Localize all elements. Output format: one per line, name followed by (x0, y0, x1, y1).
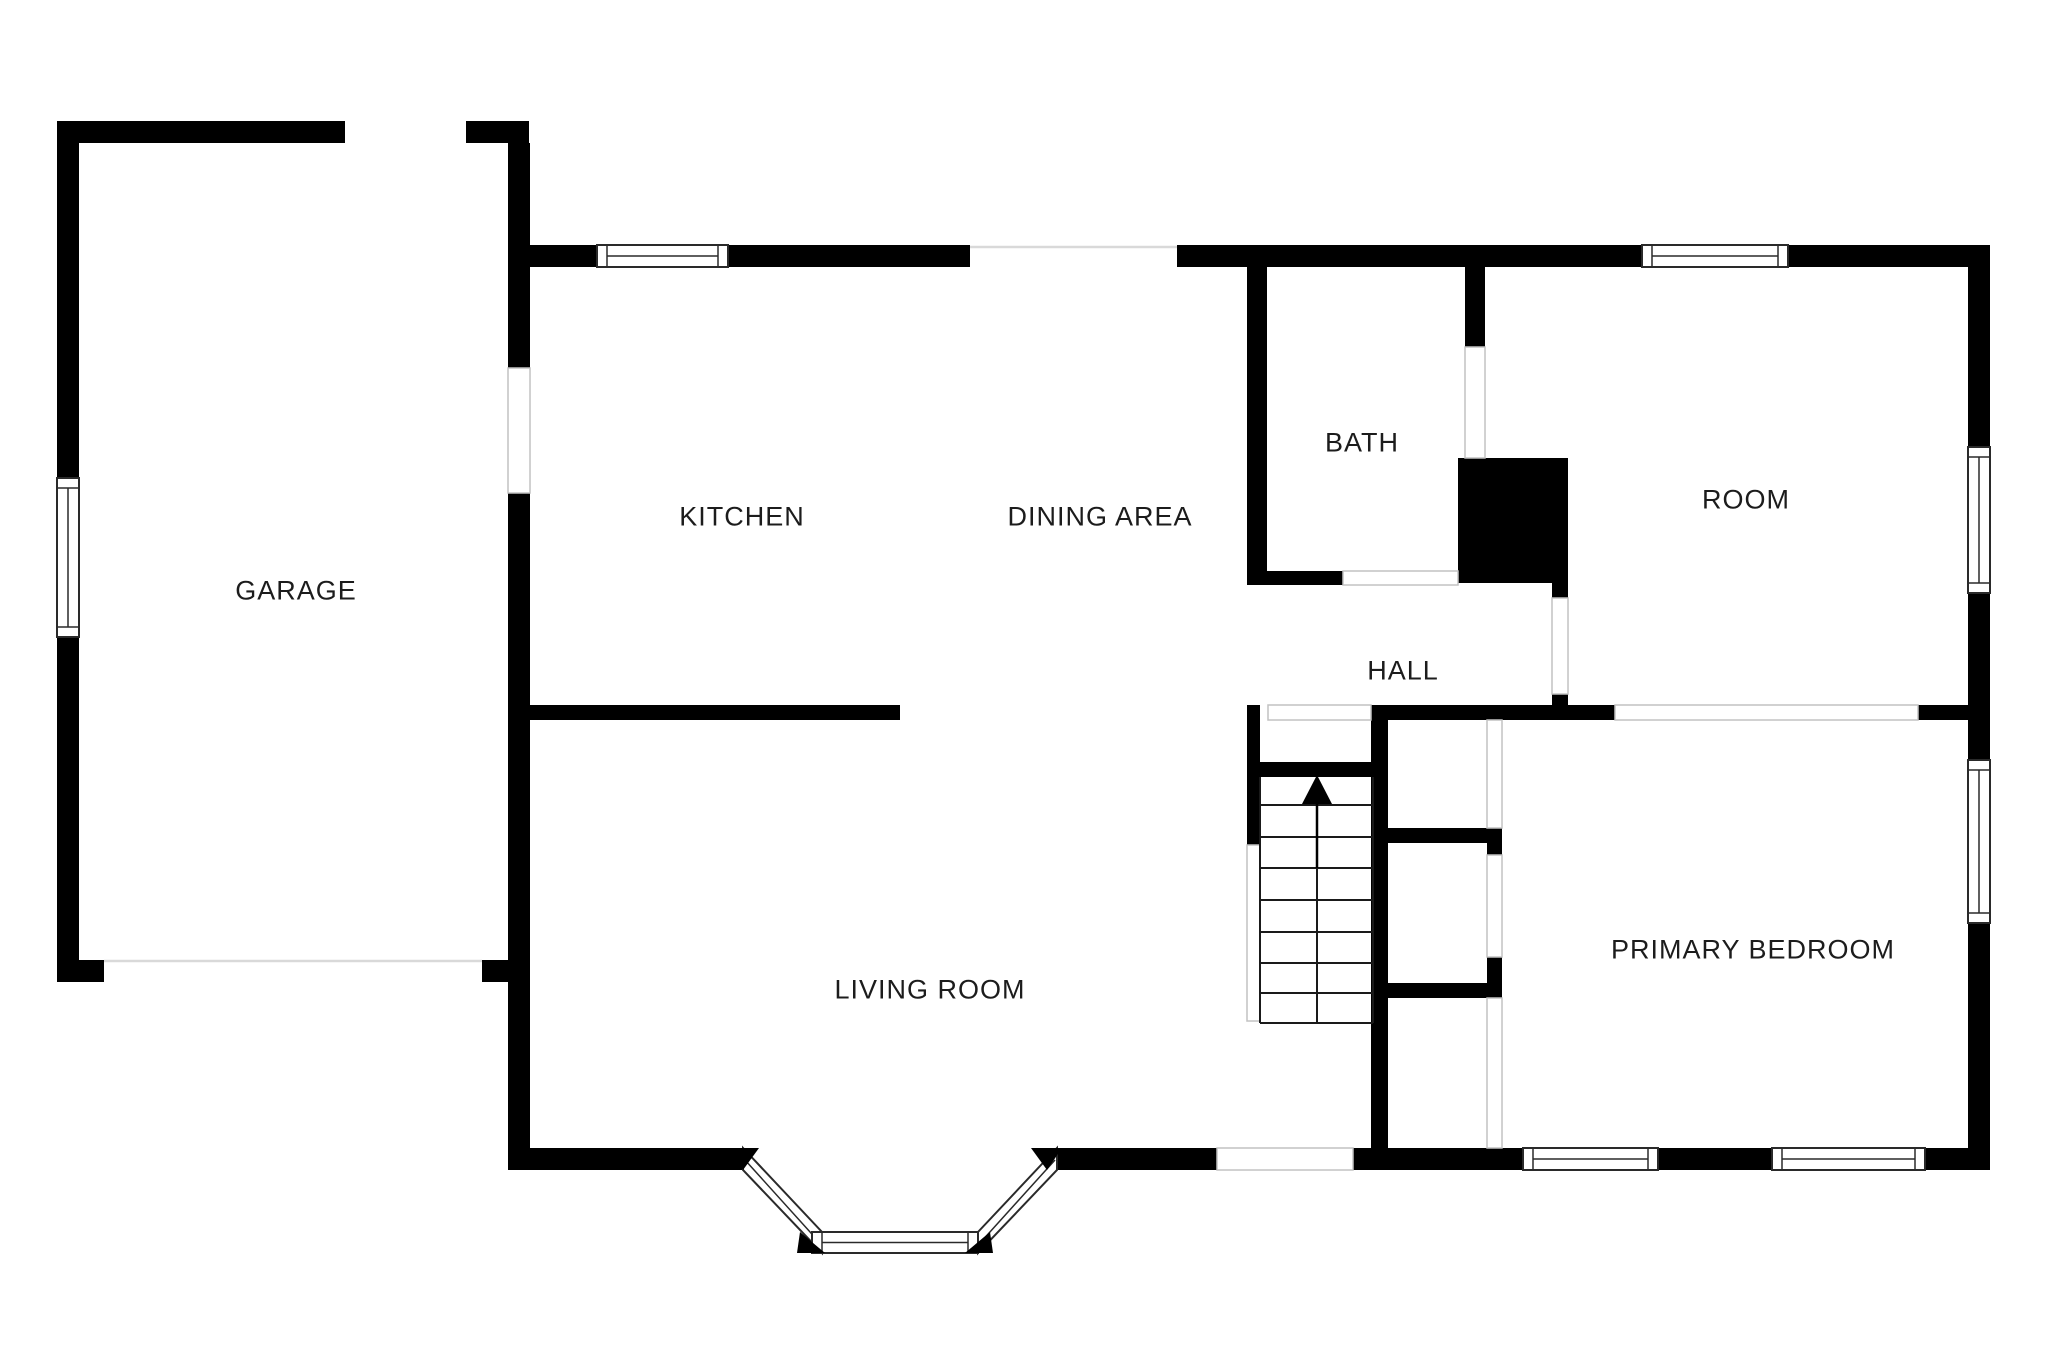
west-shared-wall-lower-wall (508, 493, 530, 1170)
room-label-bath: BATH (1325, 428, 1399, 459)
bath-bottom-door (1343, 571, 1458, 585)
floor-plan: GARAGE KITCHEN DINING AREA BATH ROOM HAL… (0, 0, 2048, 1365)
closet-post-lower-wall (1487, 957, 1502, 983)
bedroom-bottom-wall-1-wall (1353, 1148, 1523, 1170)
living-bottom-wall-west-wall (508, 1148, 743, 1170)
floor-plan-canvas (0, 0, 2048, 1365)
room-label-kitchen: KITCHEN (679, 502, 805, 533)
bath-room-top-wall-wall (1177, 245, 1990, 267)
stairs-left-wall-wall (1247, 705, 1260, 845)
stair-up-arrow-icon (1302, 775, 1332, 804)
room-label-room: ROOM (1702, 485, 1790, 516)
understair-strip (1247, 845, 1260, 1021)
bath-left-wall-wall (1247, 267, 1267, 585)
chimney-step-wall (1552, 583, 1568, 598)
garage-kitchen-door (508, 368, 530, 493)
garage-bottom-wall-left-wall (57, 960, 104, 982)
closet-post-upper-wall (1487, 843, 1502, 855)
closet-door-3 (1487, 998, 1502, 1148)
back-door (1217, 1148, 1353, 1170)
bay-right-window-pane-line (980, 1160, 1055, 1243)
bedroom-wide-opening (1615, 705, 1918, 720)
west-shared-wall-upper-wall (508, 143, 530, 368)
hall-door-stub-wall (1552, 694, 1568, 706)
kitchen-living-divider-wall (530, 705, 900, 720)
closet-wall-upper-wall (1388, 828, 1502, 843)
room-label-garage: GARAGE (235, 576, 357, 607)
room-label-hall: HALL (1367, 656, 1439, 687)
bay-left-window-pane-line (745, 1160, 820, 1243)
closet-door-2 (1487, 855, 1502, 957)
garage-left-wall-upper-wall (57, 121, 79, 478)
room-label-dining-area: DINING AREA (1007, 502, 1192, 533)
stairs-landing-wall-wall (1260, 762, 1373, 777)
living-bottom-wall-east-wall (1057, 1148, 1217, 1170)
chimney-block-wall (1458, 458, 1568, 583)
bath-right-door (1465, 347, 1485, 458)
bedroom-top-wall-east-wall (1918, 705, 1968, 720)
room-label-primary-bedroom: PRIMARY BEDROOM (1611, 935, 1895, 966)
garage-top-wall-wall (57, 121, 345, 143)
bath-bottom-wall-wall (1247, 571, 1343, 585)
closet-door-1 (1487, 720, 1502, 828)
closet-wall-lower-wall (1388, 983, 1502, 998)
bedroom-bottom-wall-2-wall (1658, 1148, 1772, 1170)
entry-nub-wall-wall (466, 121, 529, 143)
garage-left-wall-lower-wall (57, 637, 79, 982)
bath-right-wall-wall (1465, 267, 1485, 347)
room-label-living-room: LIVING ROOM (834, 975, 1025, 1006)
hall-bottom-wall-wall (1371, 705, 1615, 720)
bedroom-bottom-wall-3-wall (1925, 1148, 1990, 1170)
right-exterior-wall-wall (1968, 245, 1990, 1170)
hall-room-door (1552, 598, 1568, 694)
stairs-top-opening (1268, 705, 1371, 720)
garage-bottom-wall-right-wall (482, 960, 508, 982)
